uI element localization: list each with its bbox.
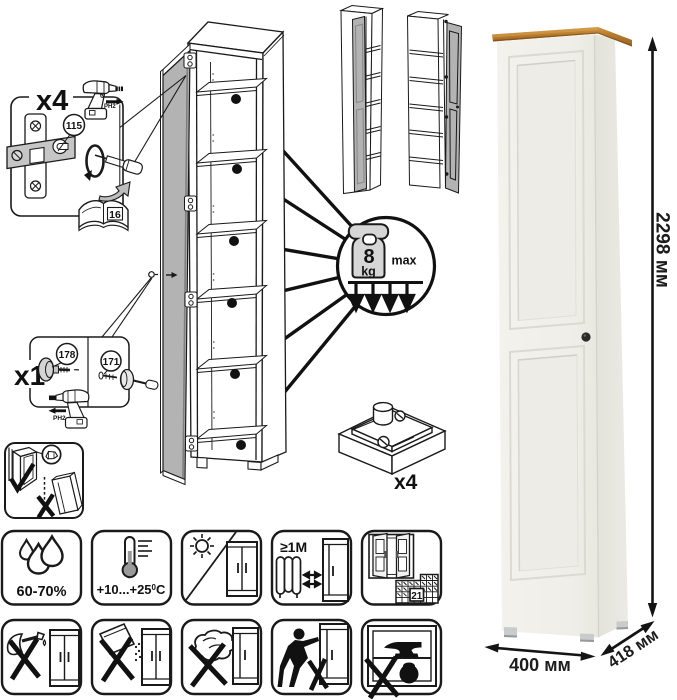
svg-text:60-70%: 60-70%	[17, 584, 67, 600]
svg-text:x4: x4	[36, 85, 68, 117]
svg-text:kg: kg	[361, 265, 376, 279]
svg-text:+10...+250C: +10...+250C	[97, 582, 166, 597]
svg-text:≥1М: ≥1М	[280, 539, 307, 555]
svg-text:max: max	[391, 254, 416, 268]
svg-text:x4: x4	[394, 471, 418, 494]
svg-text:400 мм: 400 мм	[509, 655, 571, 675]
svg-text:PH2: PH2	[104, 104, 116, 110]
svg-text:21: 21	[411, 591, 423, 602]
svg-text:115: 115	[66, 121, 83, 132]
svg-text:171: 171	[103, 357, 120, 368]
svg-text:PH2: PH2	[53, 415, 66, 422]
svg-text:178: 178	[59, 350, 76, 361]
svg-text:16: 16	[109, 209, 121, 221]
svg-text:2298 мм: 2298 мм	[652, 212, 673, 288]
